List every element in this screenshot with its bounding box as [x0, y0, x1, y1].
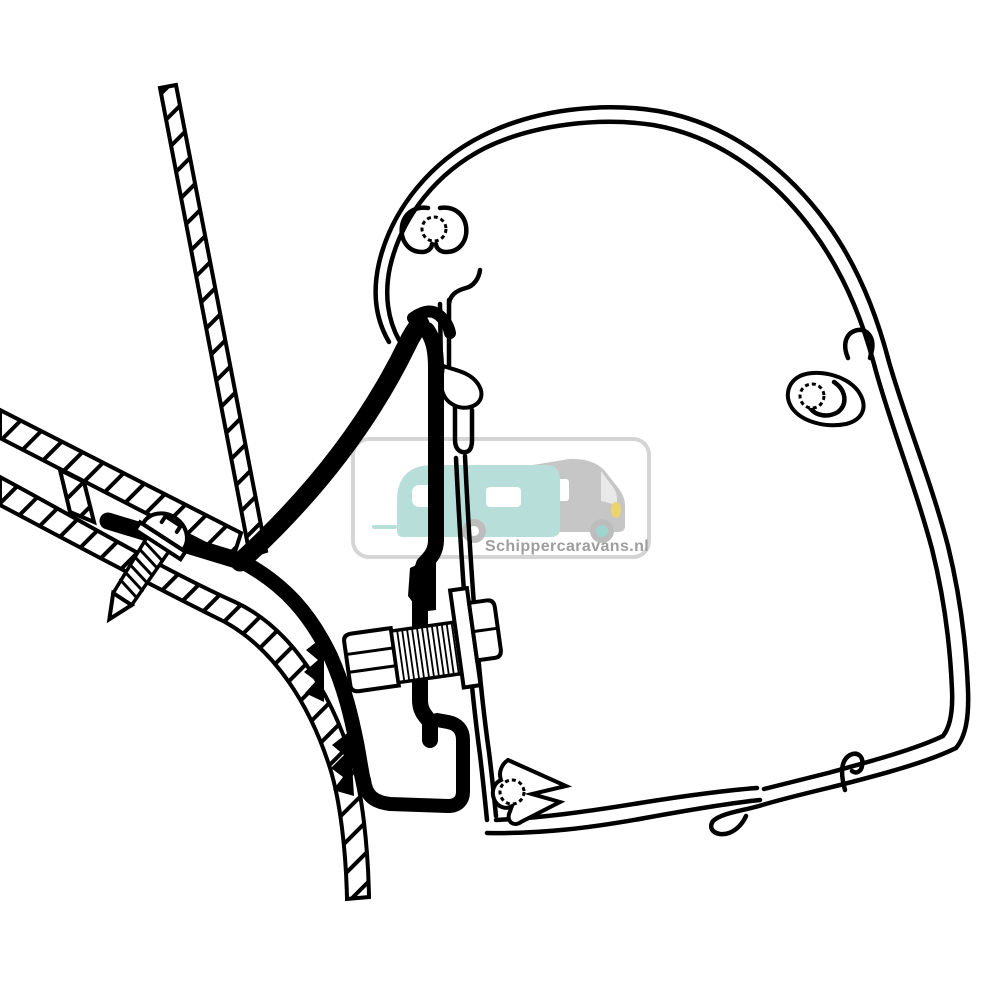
serrated-screw-channel — [800, 384, 824, 408]
caravan-wheel-hub — [469, 526, 479, 536]
screw-channel-boss-right — [788, 330, 873, 425]
vehicle-wall-panel-hatched — [160, 85, 266, 556]
caravan-front-window — [412, 485, 437, 507]
drawbar — [372, 525, 397, 529]
motorhome-wheel-hub — [596, 525, 608, 537]
adapter-bottom-foot — [364, 720, 463, 806]
caravan-icon — [372, 465, 560, 543]
watermark-brand-text: Schippercaravans.nl — [485, 538, 649, 556]
watermark-logo: Schippercaravans.nl — [351, 437, 651, 559]
serrated-screw-channel — [422, 217, 446, 241]
caravan-window — [486, 487, 521, 507]
rail-flange-step — [449, 270, 480, 304]
technical-diagram-page: Schippercaravans.nl — [0, 0, 1000, 1000]
serrated-screw-channel — [500, 780, 524, 804]
rail-lower-lip — [441, 366, 481, 408]
headlight — [611, 502, 621, 518]
vehicle-roof-skin-upper — [0, 410, 241, 558]
rail-bottom-hook — [842, 754, 862, 790]
